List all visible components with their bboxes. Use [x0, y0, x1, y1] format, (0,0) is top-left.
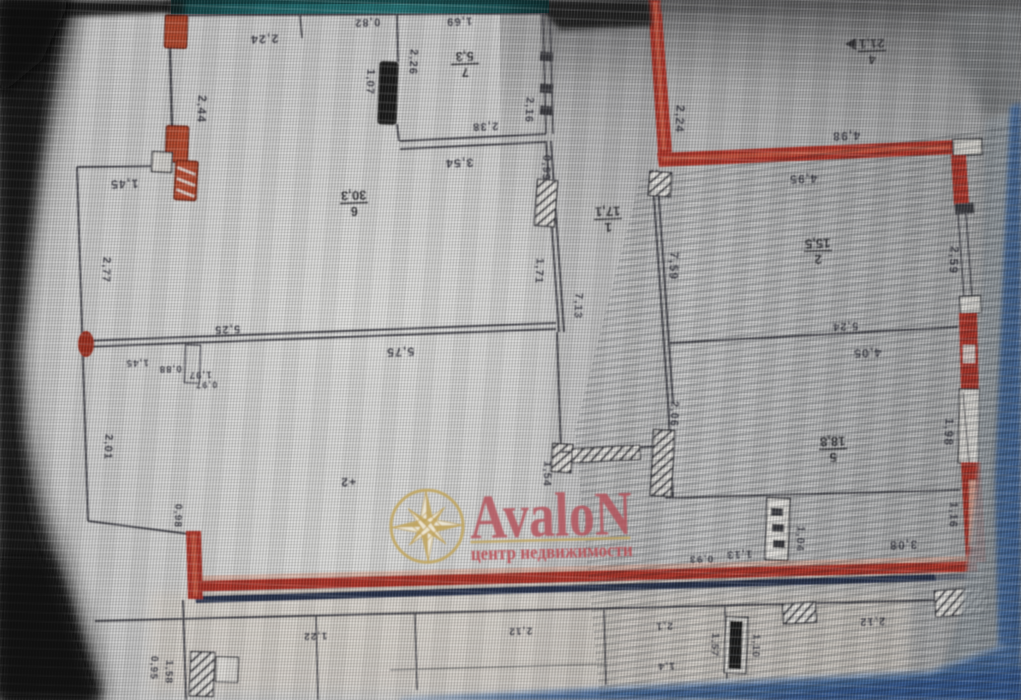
svg-text:центр недвижимости: центр недвижимости — [471, 540, 634, 565]
